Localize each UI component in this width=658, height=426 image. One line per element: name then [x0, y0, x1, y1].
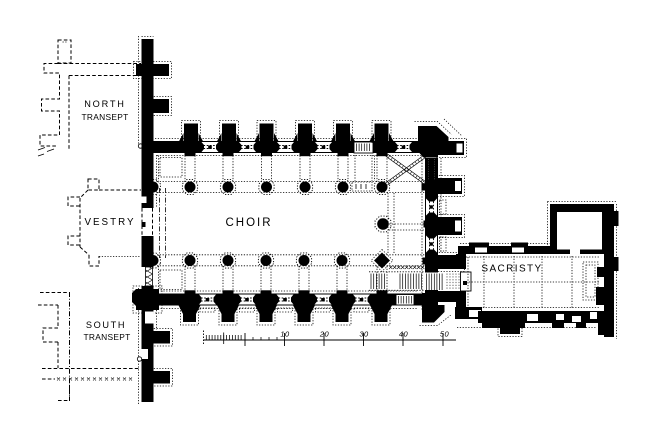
- svg-text:20: 20: [319, 330, 330, 339]
- svg-text:SACRISTY: SACRISTY: [481, 264, 542, 275]
- svg-text:10: 10: [280, 330, 290, 339]
- svg-text:TRANSEPT: TRANSEPT: [83, 332, 130, 342]
- svg-text:SOUTH: SOUTH: [86, 320, 126, 330]
- svg-text:50: 50: [440, 330, 450, 339]
- svg-text:VESTRY: VESTRY: [84, 217, 135, 228]
- svg-text:30: 30: [359, 330, 369, 339]
- svg-text:TRANSEPT: TRANSEPT: [81, 112, 128, 122]
- svg-text:40: 40: [399, 330, 409, 339]
- svg-text:CHOIR: CHOIR: [225, 217, 272, 229]
- svg-text:NORTH: NORTH: [84, 99, 126, 109]
